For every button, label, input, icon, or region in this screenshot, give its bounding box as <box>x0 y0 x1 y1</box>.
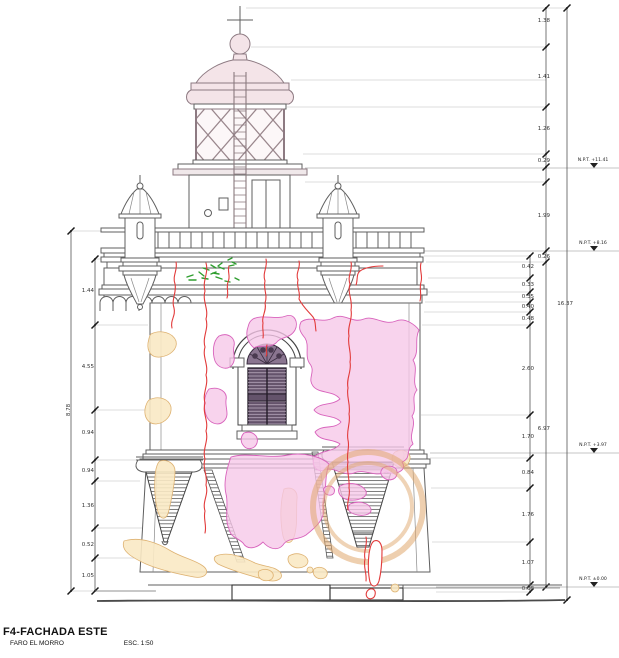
level-marker-icon <box>590 246 598 251</box>
dimension-value: 1.07 <box>522 560 535 566</box>
level-label: N.P.T. +8.16 <box>579 240 607 246</box>
cone-right-foot <box>353 533 373 547</box>
dimension-value: 4.55 <box>82 364 95 370</box>
garita-slit-window <box>137 222 143 239</box>
garita-eave <box>119 214 161 218</box>
dimension-tick-dot <box>94 480 96 482</box>
lantern <box>173 6 307 175</box>
dimension-tick-dot <box>94 258 96 260</box>
dimension-value: 0.26 <box>538 254 551 260</box>
elevation-drawing: N.P.T. +11.41N.P.T. +8.16N.P.T. +3.97N.P… <box>0 0 619 658</box>
dimension-value: 1.70 <box>522 434 535 440</box>
dimension-tick-dot <box>545 261 547 263</box>
garita-finial <box>137 183 143 189</box>
lantern-dome <box>196 60 284 83</box>
ground-line <box>97 600 565 601</box>
dimension-tick-dot <box>529 311 531 313</box>
impost-right <box>290 358 304 367</box>
dimension-value: 0.52 <box>82 542 94 548</box>
dimension-tick-dot <box>545 250 547 252</box>
plinth-block-1 <box>232 585 330 600</box>
dimension-tick-dot <box>529 277 531 279</box>
finial-neck <box>233 54 247 60</box>
dimension-value: 1.36 <box>82 503 95 509</box>
dimension-tick-dot <box>529 255 531 257</box>
dimension-value: 1.38 <box>538 18 551 24</box>
dimension-value: 0.29 <box>538 158 551 164</box>
dimension-tick-dot <box>94 557 96 559</box>
dimension-value: 1.44 <box>82 288 95 294</box>
drum-top <box>194 104 286 109</box>
level-label: N.P.T. ±0.00 <box>579 576 607 582</box>
gallery-slab <box>178 164 302 169</box>
small-window <box>219 198 228 210</box>
glazing-lattice <box>196 109 284 162</box>
level-marker-icon <box>590 163 598 168</box>
dimension-value: 0.84 <box>522 470 535 476</box>
window-sill <box>242 425 292 431</box>
dimension-tick-dot <box>529 324 531 326</box>
level-marker-icon <box>590 448 598 453</box>
dimension-tick-dot <box>70 590 72 592</box>
garita-drop <box>138 305 143 310</box>
dimension-tick-dot <box>529 541 531 543</box>
dimension-value: 0.08 <box>522 586 535 592</box>
dimension-tick-dot <box>94 459 96 461</box>
dimension-tick-dot <box>94 324 96 326</box>
dimension-tick-dot <box>529 301 531 303</box>
spall-outline-2 <box>366 589 375 599</box>
dimension-value: 0.42 <box>522 264 534 270</box>
title-block: F4-FACHADA ESTE FARO EL MORRO ESC. 1:50 <box>3 626 153 647</box>
dimension-tick-dot <box>94 409 96 411</box>
dimension-tick-dot <box>94 527 96 529</box>
balusters <box>158 232 411 248</box>
ball-finial <box>230 34 250 54</box>
dimension-value: 1.05 <box>82 573 95 579</box>
dimension-tick-dot <box>529 457 531 459</box>
dimension-tick-dot <box>566 599 568 601</box>
dimension-tick-dot <box>545 106 547 108</box>
dimension-value: 0.48 <box>522 316 535 322</box>
level-label: N.P.T. +3.97 <box>579 442 607 448</box>
dimension-tick-dot <box>545 181 547 183</box>
dimension-tick-dot <box>545 7 547 9</box>
dimension-value: 0.33 <box>522 282 535 288</box>
dimension-value: 0.40 <box>522 304 535 310</box>
dimension-value: 0.35 <box>522 294 535 300</box>
dome-band <box>191 83 289 90</box>
dimension-value: 16.37 <box>557 301 573 307</box>
dimension-tick-dot <box>566 7 568 9</box>
dimension-value: 0.94 <box>82 468 95 474</box>
project-name: FARO EL MORRO <box>10 640 64 647</box>
level-label: N.P.T. +11.41 <box>578 157 609 163</box>
glazing-sill <box>193 160 287 164</box>
dimension-value: 2.60 <box>522 366 535 372</box>
dimension-value: 8.78 <box>66 403 72 416</box>
dimension-tick-dot <box>529 414 531 416</box>
level-marker-icon <box>590 582 598 587</box>
dimension-tick-dot <box>545 153 547 155</box>
drawing-title: F4-FACHADA ESTE <box>3 626 153 638</box>
dimension-value: 1.26 <box>538 126 551 132</box>
dimension-tick-dot <box>70 230 72 232</box>
dimension-value: 1.99 <box>538 213 551 219</box>
spall-outline-1 <box>368 541 382 586</box>
dimension-value: 6.97 <box>538 426 551 432</box>
dimension-value: 1.41 <box>538 74 550 80</box>
dimension-tick-dot <box>529 487 531 489</box>
dimension-value: 0.94 <box>82 430 95 436</box>
dimension-tick-dot <box>545 46 547 48</box>
dimension-tick-dot <box>545 166 547 168</box>
dimension-tick-dot <box>529 291 531 293</box>
drawing-scale: ESC. 1:50 <box>124 640 154 647</box>
dimension-value: 1.76 <box>522 512 535 518</box>
